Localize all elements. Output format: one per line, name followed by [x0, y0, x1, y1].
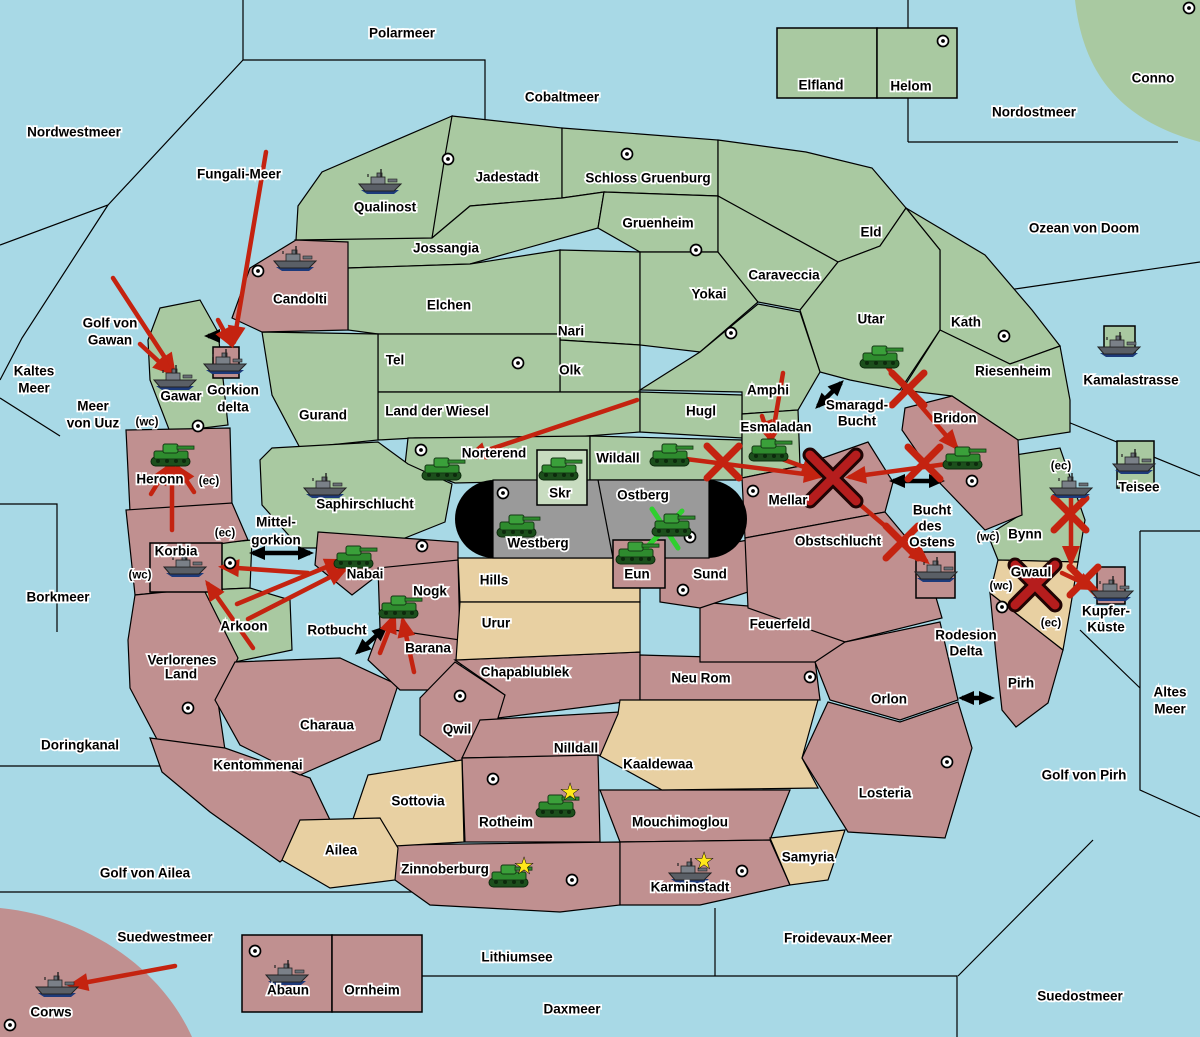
map-label: Cobaltmeer [525, 90, 600, 105]
map-label: Altes [1153, 685, 1186, 700]
region-urur[interactable] [456, 602, 640, 660]
map-label: Obstschlucht [795, 534, 882, 549]
map-label: Meer [77, 399, 109, 414]
supply-center-dot [942, 757, 953, 768]
map-label: Saphirschlucht [316, 497, 414, 512]
map-label: Qwil [443, 722, 472, 737]
build-star: ★ [515, 854, 534, 878]
supply-center-dot [416, 445, 427, 456]
map-label: Nilldall [554, 741, 598, 756]
map-label: gorkion [251, 533, 301, 548]
map-label: Conno [1132, 71, 1175, 86]
map-label: Olk [559, 363, 581, 378]
map-label: Candolti [273, 292, 327, 307]
map-label: Meer [18, 381, 50, 396]
map-label: Skr [549, 486, 572, 501]
build-star: ★ [695, 849, 714, 873]
map-label: Hugl [686, 404, 716, 419]
region-tel[interactable] [378, 334, 560, 392]
supply-center-dot [193, 421, 204, 432]
map-label: Riesenheim [975, 364, 1051, 379]
map-label: Kentommenai [213, 758, 302, 773]
map-label: Teisee [1118, 480, 1160, 495]
map-label: Gawar [160, 389, 202, 404]
map-label: Nordwestmeer [27, 125, 122, 140]
map-label: Fungali-Meer [197, 167, 282, 182]
map-label: Sottovia [391, 794, 445, 809]
map-label: Nari [558, 324, 584, 339]
map-label: Ailea [325, 843, 358, 858]
supply-center-dot [997, 602, 1008, 613]
supply-center-dot [1184, 3, 1195, 14]
map-label: Ozean von Doom [1029, 221, 1139, 236]
map-label: Golf von Ailea [100, 866, 191, 881]
map-label: delta [217, 400, 249, 415]
map-label: Pirh [1008, 676, 1034, 691]
map-label: Tel [386, 353, 405, 368]
map-label: (ec) [1041, 618, 1062, 630]
map-label: Neu Rom [671, 671, 730, 686]
map-label: Bucht [913, 503, 952, 518]
map-label: Qualinost [354, 200, 417, 215]
map-label: (ec) [199, 476, 220, 488]
map-label: Mittel- [256, 515, 296, 530]
map-label: Borkmeer [26, 590, 90, 605]
map-label: Orlon [871, 692, 907, 707]
map-label: Amphi [747, 383, 789, 398]
map-label: Suedwestmeer [117, 930, 213, 945]
map-label: Küste [1087, 620, 1125, 635]
supply-center-dot [455, 691, 466, 702]
map-label: Zinnoberburg [401, 862, 489, 877]
map-label: Kaaldewaa [623, 757, 693, 772]
map-label: Elchen [427, 298, 471, 313]
map-label: Jadestadt [475, 170, 539, 185]
map-label: Meer [1154, 702, 1186, 717]
map-label: Westberg [507, 536, 568, 551]
supply-center-dot [678, 585, 689, 596]
map-label: des [918, 519, 941, 534]
supply-center-dot [250, 946, 261, 957]
map-label: Gurand [299, 408, 347, 423]
map-label: (wc) [136, 417, 159, 429]
map-label: Eld [860, 225, 881, 240]
map-label: Golf von Pirh [1042, 768, 1127, 783]
map-label: Corws [30, 1005, 71, 1020]
strategy-map: ★★★ PolarmeerCobaltmeerNordostmeerNordwe… [0, 0, 1200, 1037]
map-label: Charaua [300, 718, 355, 733]
map-label: Mellar [768, 493, 808, 508]
supply-center-dot [726, 328, 737, 339]
map-label: Kupfer- [1082, 604, 1130, 619]
supply-center-dot [513, 358, 524, 369]
map-label: Lithiumsee [481, 950, 553, 965]
supply-center-dot [938, 36, 949, 47]
map-label: Korbia [155, 544, 198, 559]
map-label: Land [165, 667, 197, 682]
map-label: Chapablublek [481, 665, 570, 680]
map-label: Golf von [83, 316, 138, 331]
map-label: Esmaladan [740, 420, 811, 435]
map-label: Elfland [798, 78, 843, 93]
map-label: Kamalastrasse [1083, 373, 1179, 388]
map-label: Rotheim [479, 815, 533, 830]
map-label: Mouchimoglou [632, 815, 728, 830]
map-label: Helom [890, 79, 931, 94]
supply-center-dot [253, 266, 264, 277]
map-label: von Uuz [67, 416, 120, 431]
supply-center-dot [225, 558, 236, 569]
map-label: Suedostmeer [1037, 989, 1123, 1004]
map-label: Karminstadt [651, 880, 730, 895]
map-label: Yokai [691, 287, 726, 302]
region-schloss-gruenburg[interactable] [562, 128, 718, 198]
supply-center-dot [691, 245, 702, 256]
map-label: Utar [857, 312, 885, 327]
map-label: Bucht [838, 414, 877, 429]
map-label: Gawan [88, 333, 132, 348]
map-label: Verlorenes [147, 653, 216, 668]
map-label: Barana [405, 641, 451, 656]
map-label: (ec) [1051, 461, 1072, 473]
map-label: Losteria [859, 786, 912, 801]
map-label: Delta [949, 644, 983, 659]
supply-center-dot [748, 486, 759, 497]
map-label: Abaun [267, 983, 309, 998]
map-label: Norterend [462, 446, 527, 461]
map-label: Gruenheim [622, 216, 693, 231]
map-label: Wildall [596, 451, 639, 466]
map-label: Doringkanal [41, 738, 119, 753]
map-label: Sund [693, 567, 727, 582]
map-label: (wc) [129, 570, 152, 582]
supply-center-dot [498, 488, 509, 499]
map-label: Hills [480, 573, 509, 588]
map-label: Ostberg [617, 488, 669, 503]
map-label: Bridon [933, 411, 977, 426]
map-label: Feuerfeld [750, 617, 811, 632]
supply-center-dot [967, 476, 978, 487]
map-label: Kath [951, 315, 981, 330]
supply-center-dot [488, 774, 499, 785]
map-label: Rodesion [935, 628, 997, 643]
map-label: Kaltes [14, 364, 55, 379]
inset-ornheim-box[interactable] [332, 935, 422, 1012]
map-label: (wc) [977, 532, 1000, 544]
map-label: Jossangia [413, 241, 480, 256]
map-label: Heronn [136, 472, 183, 487]
map-label: (ec) [215, 528, 236, 540]
supply-center-dot [567, 875, 578, 886]
map-label: Ornheim [344, 983, 400, 998]
map-label: Smaragd- [826, 398, 888, 413]
map-label: Nabai [347, 567, 384, 582]
supply-center-dot [737, 866, 748, 877]
map-label: Gwaul [1011, 565, 1052, 580]
map-label: Froidevaux-Meer [784, 931, 893, 946]
map-label: Nogk [413, 584, 447, 599]
map-label: Polarmeer [369, 26, 436, 41]
supply-center-dot [417, 541, 428, 552]
map-label: Land der Wiesel [385, 404, 488, 419]
build-star: ★ [561, 780, 580, 804]
map-label: Urur [482, 616, 511, 631]
supply-center-dot [805, 672, 816, 683]
map-label: Rotbucht [307, 623, 367, 638]
map-label: Caraveccia [748, 268, 820, 283]
supply-center-dot [183, 703, 194, 714]
map-label: (wc) [990, 581, 1013, 593]
map-label: Daxmeer [543, 1002, 601, 1017]
map-label: Samyria [782, 850, 835, 865]
map-label: Schloss Gruenburg [585, 171, 710, 186]
supply-center-dot [5, 1020, 16, 1031]
map-label: Bynn [1008, 527, 1042, 542]
supply-center-dot [999, 331, 1010, 342]
supply-center-dot [622, 149, 633, 160]
map-label: Ostens [909, 535, 955, 550]
map-label: Gorkion [207, 383, 259, 398]
map-label: Nordostmeer [992, 105, 1077, 120]
supply-center-dot [443, 154, 454, 165]
map-label: Eun [624, 567, 650, 582]
map-label: Arkoon [220, 619, 267, 634]
